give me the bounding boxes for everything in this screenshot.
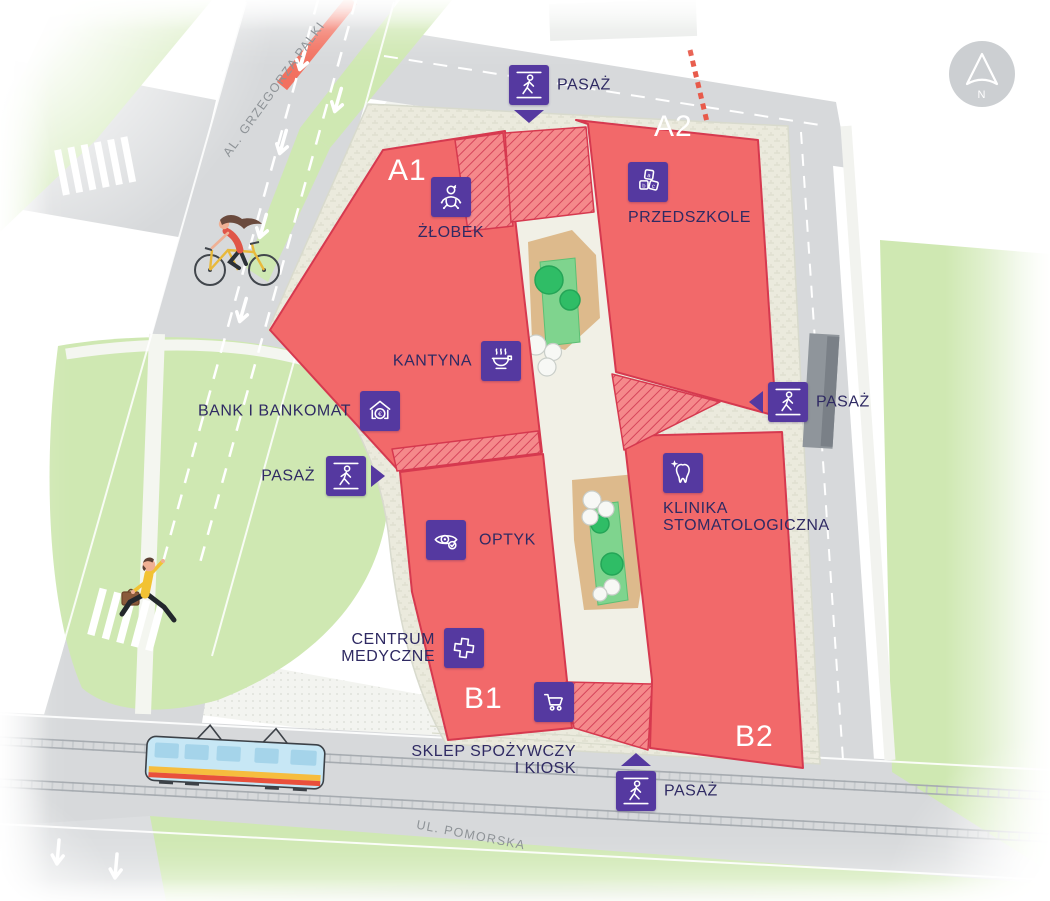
building-label-b2: B2 (735, 722, 774, 752)
poi-label: OPTYK (479, 532, 536, 549)
poi-klinika-stomatologiczna[interactable]: KLINIKA STOMATOLOGICZNA (663, 453, 703, 493)
bank-icon[interactable] (360, 391, 400, 431)
poi-label: ŻŁOBEK (418, 224, 484, 241)
walker-icon[interactable] (768, 382, 808, 422)
poi-przedszkole[interactable]: PRZEDSZKOLE (628, 162, 668, 202)
tree (601, 553, 623, 575)
arrow-right-icon (371, 465, 385, 487)
building-label-a1: A1 (388, 156, 427, 186)
walker-icon[interactable] (509, 65, 549, 105)
north-indicator: N (949, 41, 1015, 107)
abc-blocks-icon[interactable] (628, 162, 668, 202)
food-bowl-icon[interactable] (481, 341, 521, 381)
arrow-up-icon (621, 753, 651, 766)
poi-label: PASAŻ (261, 468, 315, 485)
poi-label: KLINIKA STOMATOLOGICZNA (663, 500, 830, 534)
faded-building (547, 0, 698, 43)
poi-label: PASAŻ (816, 394, 870, 411)
north-label: N (978, 89, 987, 101)
poi-label: BANK I BANKOMAT (198, 403, 351, 420)
poi-label-line: CENTRUM (341, 631, 435, 648)
poi-optyk[interactable]: OPTYK (426, 520, 466, 560)
poi-pasaz-bottom[interactable]: PASAŻ (616, 771, 656, 811)
tree (535, 266, 563, 294)
poi-label: PASAŻ (557, 77, 611, 94)
poi-label: SKLEP SPOŻYWCZY I KIOSK (411, 743, 576, 777)
poi-bank-i-bankomat[interactable]: BANK I BANKOMAT (360, 391, 400, 431)
baby-icon[interactable] (431, 177, 471, 217)
poi-pasaz-right[interactable]: PASAŻ (768, 382, 808, 422)
poi-label-line: I KIOSK (411, 760, 576, 777)
poi-centrum-medyczne[interactable]: CENTRUM MEDYCZNE (444, 628, 484, 668)
poi-label-line: KLINIKA (663, 500, 830, 517)
poi-label: PRZEDSZKOLE (628, 209, 751, 226)
shopping-cart-icon[interactable] (534, 682, 574, 722)
poi-label-line: STOMATOLOGICZNA (663, 517, 830, 534)
poi-label: CENTRUM MEDYCZNE (341, 631, 435, 665)
poi-label-line: SKLEP SPOŻYWCZY (411, 743, 576, 760)
poi-zlobek[interactable]: ŻŁOBEK (431, 177, 471, 217)
poi-sklep-spozywczy[interactable]: SKLEP SPOŻYWCZY I KIOSK (534, 682, 574, 722)
arrow-down-icon (514, 110, 544, 123)
medical-cross-icon[interactable] (444, 628, 484, 668)
building-label-b1: B1 (464, 684, 503, 714)
building-label-a2: A2 (654, 112, 693, 142)
tree (560, 290, 580, 310)
poi-label: PASAŻ (664, 783, 718, 800)
tooth-icon[interactable] (663, 453, 703, 493)
poi-pasaz-left[interactable]: PASAŻ (326, 456, 366, 496)
arrow-left-icon (749, 391, 763, 413)
site-plan-map: a b c € (0, 0, 1050, 901)
eye-icon[interactable] (426, 520, 466, 560)
building-b2[interactable] (624, 432, 803, 768)
walker-icon[interactable] (616, 771, 656, 811)
poi-pasaz-top[interactable]: PASAŻ (509, 65, 549, 105)
poi-label-line: MEDYCZNE (341, 648, 435, 665)
walker-icon[interactable] (326, 456, 366, 496)
poi-label: KANTYNA (393, 353, 472, 370)
poi-kantyna[interactable]: KANTYNA (481, 341, 521, 381)
